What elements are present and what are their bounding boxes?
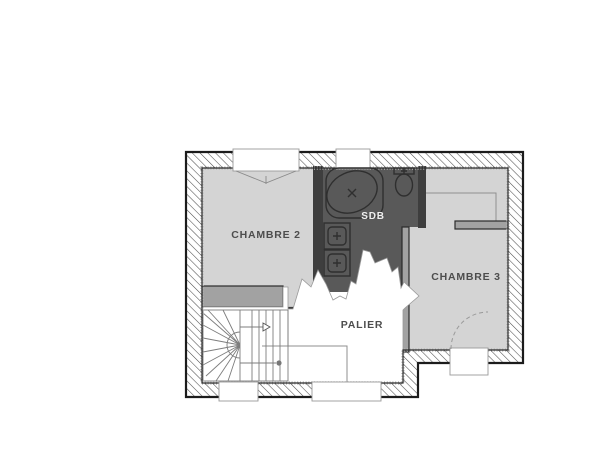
floor-plan-canvas: CHAMBRE 2 SDB CHAMBRE 3 PALIER [0,0,600,450]
floor-plan-page: CHAMBRE 2 SDB CHAMBRE 3 PALIER [0,0,600,450]
room-label-palier: PALIER [341,319,384,331]
room-label-sdb: SDB [361,211,385,222]
room-label-chambre2: CHAMBRE 2 [231,229,301,241]
room-label-chambre3: CHAMBRE 3 [431,271,501,283]
stair-start-post-icon [276,360,281,365]
wall-chambre2-stairwell [202,286,283,307]
wall-chambre2-sdb [313,166,323,282]
window-palier [312,382,381,401]
wall-sdb-chambre3 [418,166,426,228]
window-sdb [336,149,370,169]
window-stairwell [219,382,258,401]
closet-wall-chambre3 [455,221,508,229]
